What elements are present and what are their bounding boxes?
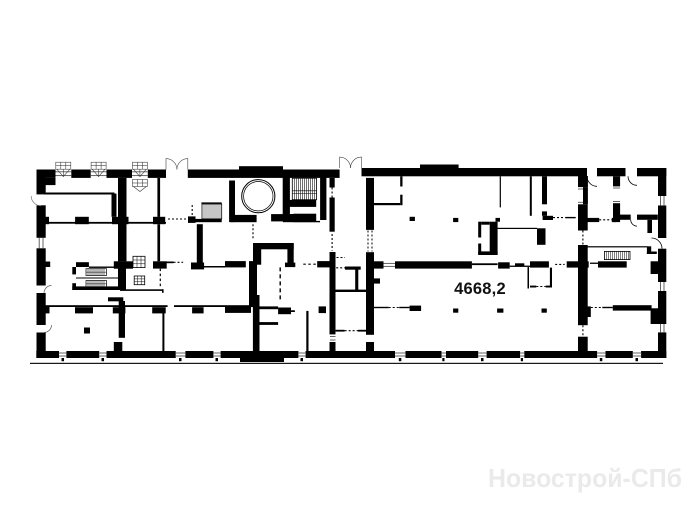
svg-text:Новострой-СПб: Новострой-СПб [488,463,682,493]
svg-text:4668,2: 4668,2 [454,280,506,298]
